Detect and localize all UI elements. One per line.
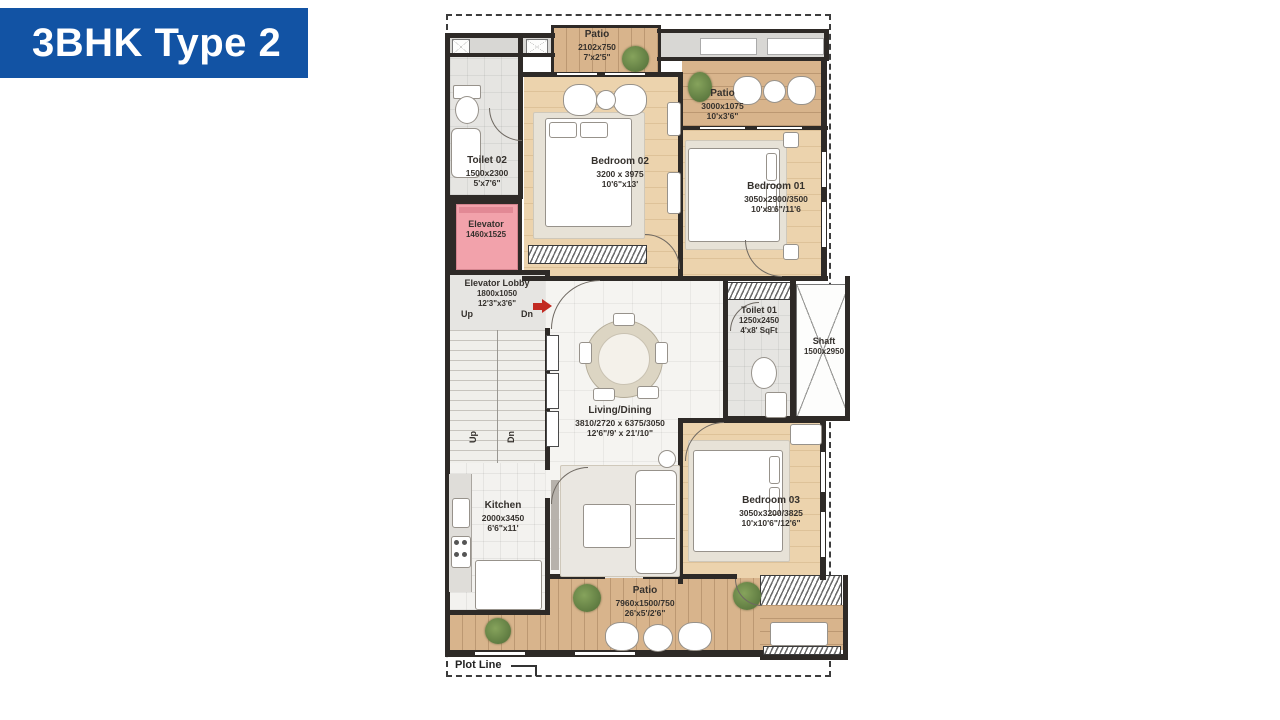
room-name: Patio <box>542 29 652 42</box>
wall-segment <box>445 33 555 38</box>
window <box>605 73 645 75</box>
sofa-cushion-line <box>635 504 675 505</box>
floor-lamp <box>658 450 676 468</box>
room-dim-mm: 1800x1050 <box>447 289 547 299</box>
armchair <box>563 84 597 116</box>
wall-segment <box>657 29 829 33</box>
entry-arrow <box>533 303 542 310</box>
wall-segment <box>824 29 829 59</box>
hob-burner <box>462 552 467 557</box>
balcony-grille <box>763 646 841 655</box>
window <box>475 652 525 655</box>
room-dim-ft: 7'x2'5" <box>542 52 652 63</box>
patio-chair <box>605 622 639 651</box>
entry-arrow-head <box>542 299 552 313</box>
side-table <box>596 90 616 110</box>
patio-right-label: Patio 3000x1075 10'x3'6" <box>670 88 775 122</box>
room-dim-ft: 10'x10'6"/12'6" <box>711 518 831 529</box>
dining-table <box>598 333 650 385</box>
room-name: Patio <box>670 88 775 101</box>
page-title: 3BHK Type 2 <box>0 8 308 78</box>
dining-chair <box>579 342 592 364</box>
patio-table <box>643 624 673 652</box>
toilet-01-label: Toilet 01 1250x2450 4'x8' SqFt <box>729 305 789 336</box>
ledge-panel <box>700 38 757 55</box>
dining-chair <box>593 388 615 401</box>
bedside-table <box>783 132 799 148</box>
plant <box>485 618 511 644</box>
room-dim-mm: 7960x1500/750 <box>590 598 700 609</box>
hob-burner <box>462 540 467 545</box>
floor-plan: Patio 2102x750 7'x2'5" Patio 3000x1075 1… <box>445 12 857 684</box>
room-name: Elevator Lobby <box>447 278 547 289</box>
pillow <box>580 122 608 138</box>
room-dim-mm: 3000x1075 <box>670 101 775 112</box>
bedroom-03-label: Bedroom 03 3050x3200/3825 10'x10'6"/12'6… <box>711 495 831 529</box>
wall-segment <box>723 276 728 421</box>
screenshot-stage: 3BHK Type 2 <box>0 0 1280 720</box>
lobby-dn-label: Dn <box>521 309 533 320</box>
room-dim-ft: 10'x3'6" <box>670 111 775 122</box>
plot-line-label: Plot Line <box>455 659 501 671</box>
wall-segment <box>522 72 682 77</box>
bedroom-02-wardrobe <box>528 245 647 264</box>
wall-segment <box>843 575 848 660</box>
wall-segment <box>445 195 523 199</box>
lobby-up-label: Up <box>461 309 473 320</box>
pillow <box>549 122 577 138</box>
wall-segment <box>657 57 829 61</box>
room-dim-ft: 4'x8' SqFt <box>729 326 789 336</box>
bedroom-03-wardrobe <box>760 575 842 607</box>
room-name: Patio <box>590 585 700 598</box>
living-dining-label: Living/Dining 3810/2720 x 6375/3050 12'6… <box>555 405 685 439</box>
room-dim-mm: 3050x2900/3500 <box>721 194 831 205</box>
wall-segment <box>682 574 737 579</box>
shaft-label: Shaft 1500x2950 <box>793 336 855 357</box>
patio-top-label: Patio 2102x750 7'x2'5" <box>542 29 652 63</box>
plot-line-text: Plot Line <box>455 659 501 671</box>
room-name: Kitchen <box>457 500 549 513</box>
ledge-panel <box>767 38 824 55</box>
wall-segment <box>682 276 828 281</box>
toilet-01-wc <box>751 357 777 389</box>
patio-chair <box>678 622 712 651</box>
pillow <box>769 456 780 484</box>
elevator-lobby-label: Elevator Lobby 1800x1050 12'3"x3'6" Up D… <box>447 278 547 321</box>
armchair <box>613 84 647 116</box>
room-name: Toilet 02 <box>445 155 529 168</box>
room-dim-ft: 26'x5'/2'6" <box>590 608 700 619</box>
room-name: Bedroom 03 <box>711 495 831 508</box>
room-dim-mm: 1500x2300 <box>445 168 529 179</box>
room-dim-ft: 12'6"/9' x 21'/10" <box>555 428 685 439</box>
room-dim-ft: 5'x7'6" <box>445 178 529 189</box>
kitchen-label: Kitchen 2000x3450 6'6"x11' <box>457 500 549 534</box>
bedroom-01-wardrobe <box>727 282 792 300</box>
room-name: Shaft <box>793 336 855 347</box>
room-name: Living/Dining <box>555 405 685 418</box>
sofa-cushion-line <box>635 538 675 539</box>
shelf-box <box>546 335 559 371</box>
window <box>557 73 597 75</box>
patio-bottom-label: Patio 7960x1500/750 26'x5'/2'6" <box>590 585 700 619</box>
room-dim-ft: 10'6"x13' <box>565 179 675 190</box>
coffee-table <box>583 504 631 548</box>
elevator-door <box>459 207 513 213</box>
room-dim-ft: 6'6"x11' <box>457 523 549 534</box>
window <box>821 452 825 492</box>
bedside-table <box>783 244 799 260</box>
room-dim-mm: 3050x3200/3825 <box>711 508 831 519</box>
window <box>575 652 635 655</box>
room-dim-mm: 3810/2720 x 6375/3050 <box>555 418 685 429</box>
dining-chair <box>655 342 668 364</box>
desk <box>790 424 822 445</box>
dining-chair <box>613 313 635 326</box>
plot-line-connector <box>511 665 537 676</box>
wall-segment <box>445 53 555 57</box>
wall-segment <box>551 25 661 28</box>
wall-segment <box>445 270 550 275</box>
room-name: Toilet 01 <box>729 305 789 316</box>
dining-chair <box>637 386 659 399</box>
room-dim-mm: 3200 x 3975 <box>565 169 675 180</box>
wall-segment <box>682 418 826 423</box>
room-name: Bedroom 01 <box>721 181 831 194</box>
room-dim-ft: 12'3"x3'6" <box>447 299 547 309</box>
lobby-updn: Up Dn <box>447 309 547 320</box>
room-name: Bedroom 02 <box>565 156 675 169</box>
stair-divider <box>497 330 498 463</box>
hob-burner <box>454 552 459 557</box>
wall-segment <box>445 610 550 615</box>
toilet-01-sink <box>765 392 787 418</box>
title-banner: 3BHK Type 2 <box>0 8 308 78</box>
room-dim-mm: 2102x750 <box>542 42 652 53</box>
window <box>700 127 745 129</box>
patio-chair <box>787 76 816 105</box>
window <box>757 127 802 129</box>
pillow <box>766 153 777 181</box>
toilet-02-wc <box>455 96 479 124</box>
elevator-label: Elevator 1460x1525 <box>455 219 517 240</box>
balcony-bench <box>770 622 828 646</box>
room-dim-mm: 1250x2450 <box>729 316 789 326</box>
stairs-dn-label: Dn <box>506 431 516 443</box>
sofa <box>635 470 677 574</box>
room-dim-mm: 1460x1525 <box>455 230 517 240</box>
bedroom-01-label: Bedroom 01 3050x2900/3500 10'x9'6"/11'6 <box>721 181 831 215</box>
kitchen-platform <box>475 560 542 610</box>
stairs-up-label: Up <box>468 431 478 443</box>
bedroom-02-label: Bedroom 02 3200 x 3975 10'6"x13' <box>565 156 675 190</box>
hob-burner <box>454 540 459 545</box>
room-dim-mm: 2000x3450 <box>457 513 549 524</box>
shelf-box <box>546 373 559 409</box>
toilet-02-label: Toilet 02 1500x2300 5'x7'6" <box>445 155 529 189</box>
room-dim-mm: 1500x2950 <box>793 347 855 357</box>
room-dim-ft: 10'x9'6"/11'6 <box>721 204 831 215</box>
room-name: Elevator <box>455 219 517 230</box>
